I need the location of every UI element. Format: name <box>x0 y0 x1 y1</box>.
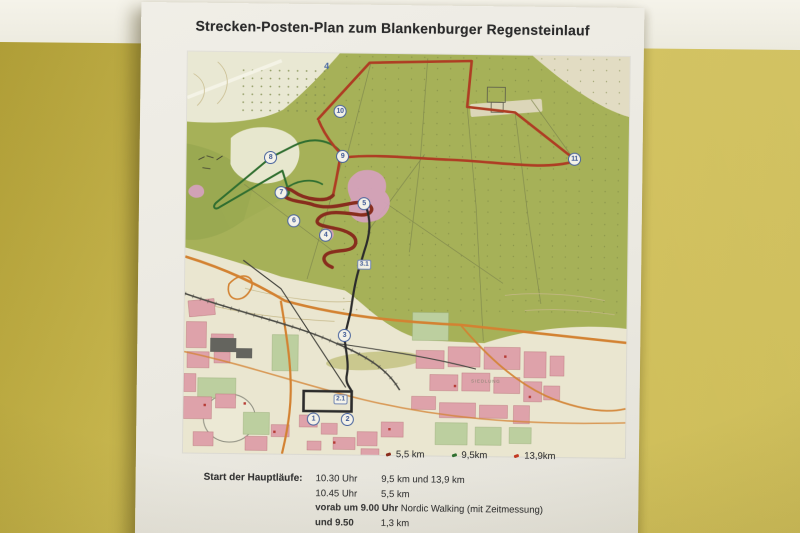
waypoint-label-2.1: 2.1 <box>334 394 348 404</box>
checkpoint-layer: 4 SIEDLUNG 12345678910112.13.1 <box>183 52 630 458</box>
poster-paper: Strecken-Posten-Plan zum Blankenburger R… <box>135 2 645 533</box>
schedule-distance: Nordic Walking (mit Zeitmessung) <box>401 503 543 516</box>
legend-mark <box>451 453 457 457</box>
legend-mark <box>514 454 520 458</box>
checkpoint-7: 7 <box>275 186 288 199</box>
checkpoint-1: 1 <box>307 413 320 426</box>
schedule-rows: 10.30 Uhr 9,5 km und 13,9 km10.45 Uhr 5,… <box>315 473 543 533</box>
legend-mark <box>386 452 392 456</box>
schedule-distance: 1,3 km <box>381 518 410 529</box>
topographic-map: 4 SIEDLUNG 12345678910112.13.1 <box>183 52 630 458</box>
settlement-label: SIEDLUNG <box>471 379 500 384</box>
checkpoint-6: 6 <box>287 214 300 227</box>
schedule-time: und 9.50 <box>315 517 378 529</box>
legend: 5,5 km9,5km13,9km <box>386 449 556 462</box>
photo-of-route-plan: Strecken-Posten-Plan zum Blankenburger R… <box>0 0 800 533</box>
schedule-distance: 9,5 km und 13,9 km <box>381 474 465 486</box>
legend-item: 13,9km <box>514 451 555 463</box>
checkpoint-4: 4 <box>319 229 332 242</box>
checkpoint-9: 9 <box>336 150 349 163</box>
checkpoint-5: 5 <box>357 197 370 210</box>
checkpoint-3: 3 <box>338 329 351 342</box>
map-grid-number: 4 <box>324 61 329 71</box>
waypoint-label-3.1: 3.1 <box>357 260 371 270</box>
legend-item: 5,5 km <box>386 449 425 460</box>
poster-title: Strecken-Posten-Plan zum Blankenburger R… <box>141 17 644 39</box>
checkpoint-8: 8 <box>264 151 277 164</box>
schedule-time: 10.45 Uhr <box>315 488 378 500</box>
legend-item: 9,5km <box>451 450 487 461</box>
legend-label: 5,5 km <box>396 449 425 460</box>
checkpoint-11: 11 <box>568 153 581 166</box>
schedule-time: vorab um 9.00 Uhr <box>315 502 398 514</box>
legend-label: 9,5km <box>461 450 487 461</box>
checkpoint-2: 2 <box>341 413 354 426</box>
schedule-time: 10.30 Uhr <box>316 473 379 485</box>
legend-label: 13,9km <box>524 451 555 462</box>
schedule-row: und 9.50 1,3 km <box>315 517 543 533</box>
schedule-distance: 5,5 km <box>381 489 410 500</box>
schedule-heading: Start der Hauptläufe: <box>204 472 303 484</box>
checkpoint-10: 10 <box>334 105 347 118</box>
